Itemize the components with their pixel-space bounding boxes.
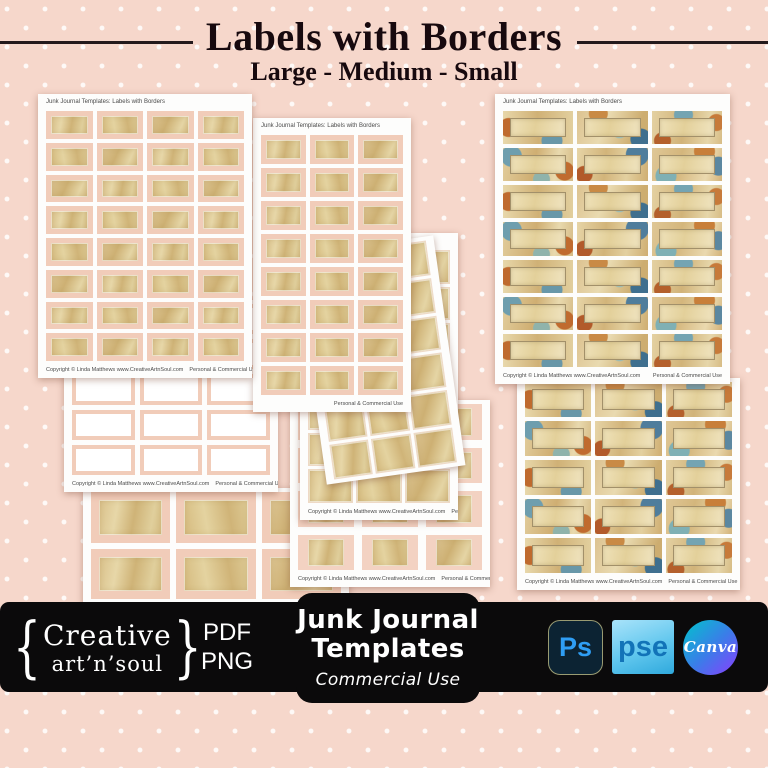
label-cell: [652, 185, 722, 218]
label-cell: [577, 185, 647, 218]
label-cell: [261, 267, 306, 296]
label-cell: [666, 460, 732, 495]
label-cell: [198, 111, 245, 139]
label-cell: [261, 201, 306, 230]
sheet-header-text: Junk Journal Templates: Labels with Bord…: [38, 94, 252, 107]
sheet-footer: Copyright © Linda Matthews www.CreativeA…: [300, 507, 458, 520]
label-cell: [525, 460, 591, 495]
label-cell: [329, 440, 373, 480]
label-cell: [595, 499, 661, 534]
label-cell: [261, 135, 306, 164]
sheet-license: Personal & Commercial Use: [668, 579, 737, 586]
label-cell: [198, 175, 245, 203]
brand-name-line1: Creative: [43, 619, 172, 652]
label-cell: [358, 234, 403, 263]
sheet-copyright: Copyright © Linda Matthews www.CreativeA…: [503, 373, 640, 380]
label-cell: [358, 201, 403, 230]
label-cell: [46, 302, 93, 330]
label-cell: [577, 334, 647, 367]
sheet-copyright: Copyright © Linda Matthews www.CreativeA…: [525, 579, 662, 586]
label-cell: [595, 538, 661, 573]
sheet-license: Personal & Commercial Use: [189, 367, 252, 374]
promo-image: Labels with Borders Large - Medium - Sma…: [0, 0, 768, 768]
label-cell: [362, 535, 418, 571]
label-cell: [652, 260, 722, 293]
label-cell: [652, 148, 722, 181]
label-cell: [358, 168, 403, 197]
label-cell: [503, 334, 573, 367]
label-cell: [426, 535, 482, 571]
label-cell: [261, 234, 306, 263]
sheet-license: Personal & Commercial Use: [334, 401, 403, 408]
label-cell: [140, 445, 203, 475]
label-cell: [666, 421, 732, 456]
label-cell: [652, 334, 722, 367]
label-cell: [577, 148, 647, 181]
label-cell: [310, 333, 355, 362]
file-formats: PDF PNG: [196, 602, 258, 692]
label-cell: [358, 267, 403, 296]
label-cell: [577, 260, 647, 293]
label-cell: [72, 410, 135, 440]
label-cell: [147, 270, 194, 298]
label-cell: [46, 206, 93, 234]
label-cell: [503, 222, 573, 255]
label-cell: [525, 421, 591, 456]
label-cell: [310, 300, 355, 329]
label-cell: [503, 111, 573, 144]
label-cell: [176, 492, 255, 543]
label-cell: [147, 238, 194, 266]
format-pdf: PDF: [196, 620, 258, 645]
brace-left-glyph: {: [12, 609, 42, 686]
sheet-footer: Personal & Commercial Use: [253, 399, 411, 412]
label-cell: [577, 297, 647, 330]
label-cell: [652, 222, 722, 255]
label-cell: [46, 111, 93, 139]
template-sheet-bottom-right: Copyright © Linda Matthews www.CreativeA…: [517, 378, 740, 590]
label-cell: [652, 111, 722, 144]
label-cell: [261, 333, 306, 362]
label-cell: [46, 143, 93, 171]
sheet-footer: Copyright © Linda Matthews www.CreativeA…: [517, 577, 740, 590]
label-cell: [147, 143, 194, 171]
label-cell: [358, 333, 403, 362]
label-cell: [97, 302, 144, 330]
label-cell: [147, 302, 194, 330]
label-cell: [176, 549, 255, 600]
label-cell: [310, 168, 355, 197]
label-cell: [503, 297, 573, 330]
label-cell: [147, 111, 194, 139]
label-cell: [525, 538, 591, 573]
label-cell: [97, 270, 144, 298]
label-cell: [310, 234, 355, 263]
label-grid: [503, 111, 722, 367]
label-cell: [371, 434, 415, 474]
label-cell: [198, 143, 245, 171]
label-cell: [503, 148, 573, 181]
label-cell: [595, 460, 661, 495]
label-grid: [525, 382, 732, 573]
sheet-license: Personal & Commercial Use: [653, 373, 722, 380]
label-cell: [72, 374, 135, 404]
label-cell: [666, 538, 732, 573]
label-cell: [595, 421, 661, 456]
compatible-apps: Ps pse Canva: [548, 602, 738, 692]
label-cell: [261, 168, 306, 197]
label-cell: [46, 175, 93, 203]
sheet-copyright: Copyright © Linda Matthews www.CreativeA…: [46, 367, 183, 374]
label-cell: [652, 297, 722, 330]
label-cell: [310, 366, 355, 395]
sheet-copyright: Copyright © Linda Matthews www.CreativeA…: [72, 481, 209, 488]
sheet-footer: Copyright © Linda Matthews www.CreativeA…: [38, 365, 252, 378]
label-cell: [46, 270, 93, 298]
label-cell: [97, 238, 144, 266]
label-cell: [577, 222, 647, 255]
label-cell: [97, 206, 144, 234]
label-grid: [261, 135, 403, 395]
badge-title-line1: Junk Journal: [297, 606, 479, 634]
sheet-copyright: Copyright © Linda Matthews www.CreativeA…: [298, 576, 435, 583]
canva-icon: Canva: [683, 620, 738, 675]
badge-title-line2: Templates: [311, 635, 464, 663]
sheet-footer: Copyright © Linda Matthews www.CreativeA…: [290, 574, 490, 587]
label-cell: [97, 175, 144, 203]
label-cell: [261, 300, 306, 329]
label-cell: [413, 428, 457, 468]
label-cell: [503, 260, 573, 293]
label-cell: [358, 366, 403, 395]
label-cell: [147, 206, 194, 234]
label-cell: [198, 206, 245, 234]
label-cell: [310, 201, 355, 230]
label-cell: [198, 238, 245, 266]
sheet-footer: Copyright © Linda Matthews www.CreativeA…: [495, 371, 730, 384]
label-cell: [525, 382, 591, 417]
sheet-license: Personal & Commercial Use: [441, 576, 490, 583]
label-cell: [140, 410, 203, 440]
label-cell: [140, 374, 203, 404]
sheet-header-text: Junk Journal Templates: Labels with Bord…: [253, 118, 411, 131]
label-cell: [46, 333, 93, 361]
label-cell: [207, 445, 270, 475]
sheet-header-text: Junk Journal Templates: Labels with Bord…: [495, 94, 730, 107]
page-subtitle: Large - Medium - Small: [0, 57, 768, 87]
label-cell: [503, 185, 573, 218]
template-sheet-top-left: Junk Journal Templates: Labels with Bord…: [38, 94, 252, 378]
label-cell: [198, 270, 245, 298]
photoshop-icon: Ps: [548, 620, 603, 675]
page-title: Labels with Borders: [0, 13, 768, 60]
label-cell: [358, 135, 403, 164]
label-cell: [198, 302, 245, 330]
template-sheet-center: Junk Journal Templates: Labels with Bord…: [253, 118, 411, 412]
label-cell: [298, 535, 354, 571]
label-cell: [97, 111, 144, 139]
label-cell: [147, 175, 194, 203]
label-cell: [91, 492, 170, 543]
label-cell: [207, 410, 270, 440]
label-cell: [666, 499, 732, 534]
label-cell: [310, 135, 355, 164]
label-cell: [666, 382, 732, 417]
label-cell: [97, 333, 144, 361]
photoshop-elements-icon: pse: [612, 620, 674, 674]
label-cell: [525, 499, 591, 534]
product-badge: Junk Journal Templates Commercial Use: [296, 593, 480, 703]
sheet-license: Personal & Commercial Use: [451, 509, 458, 516]
label-cell: [358, 300, 403, 329]
label-cell: [405, 469, 450, 503]
sheet-footer: Copyright © Linda Matthews www.CreativeA…: [64, 479, 278, 492]
format-png: PNG: [196, 649, 258, 674]
brand-name-line2: art’n’soul: [52, 652, 164, 676]
label-cell: [408, 390, 452, 430]
label-cell: [595, 382, 661, 417]
label-cell: [198, 333, 245, 361]
sheet-copyright: Copyright © Linda Matthews www.CreativeA…: [308, 509, 445, 516]
template-sheet-top-right: Junk Journal Templates: Labels with Bord…: [495, 94, 730, 384]
label-cell: [310, 267, 355, 296]
label-cell: [261, 366, 306, 395]
label-grid: [46, 111, 244, 361]
label-cell: [577, 111, 647, 144]
badge-license: Commercial Use: [316, 670, 461, 690]
label-cell: [46, 238, 93, 266]
brand-logo: { Creative art’n’soul }: [12, 602, 203, 692]
label-cell: [97, 143, 144, 171]
sheet-license: Personal & Commercial Use: [215, 481, 278, 488]
label-cell: [91, 549, 170, 600]
label-cell: [147, 333, 194, 361]
label-cell: [72, 445, 135, 475]
